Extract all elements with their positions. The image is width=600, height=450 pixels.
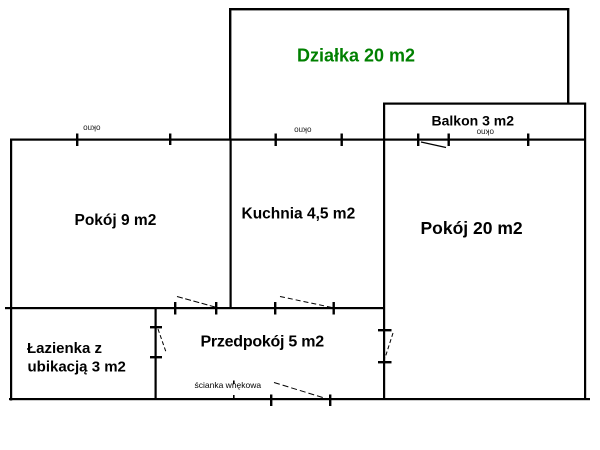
svg-text:Działka 20 m2: Działka 20 m2 <box>297 46 415 66</box>
svg-text:ścianka wnękowa: ścianka wnękowa <box>195 380 262 390</box>
svg-text:Łazienka z: Łazienka z <box>27 340 102 357</box>
svg-text:okno: okno <box>83 124 101 133</box>
svg-text:Balkon 3 m2: Balkon 3 m2 <box>432 113 515 129</box>
svg-text:Pokój 9 m2: Pokój 9 m2 <box>75 212 157 229</box>
svg-text:ubikacją 3 m2: ubikacją 3 m2 <box>28 359 126 376</box>
svg-text:okno: okno <box>294 126 312 135</box>
svg-text:Pokój 20 m2: Pokój 20 m2 <box>421 218 523 238</box>
svg-text:Przedpokój 5 m2: Przedpokój 5 m2 <box>201 334 325 351</box>
svg-text:okno: okno <box>476 128 494 137</box>
svg-text:Kuchnia 4,5 m2: Kuchnia 4,5 m2 <box>242 206 356 223</box>
